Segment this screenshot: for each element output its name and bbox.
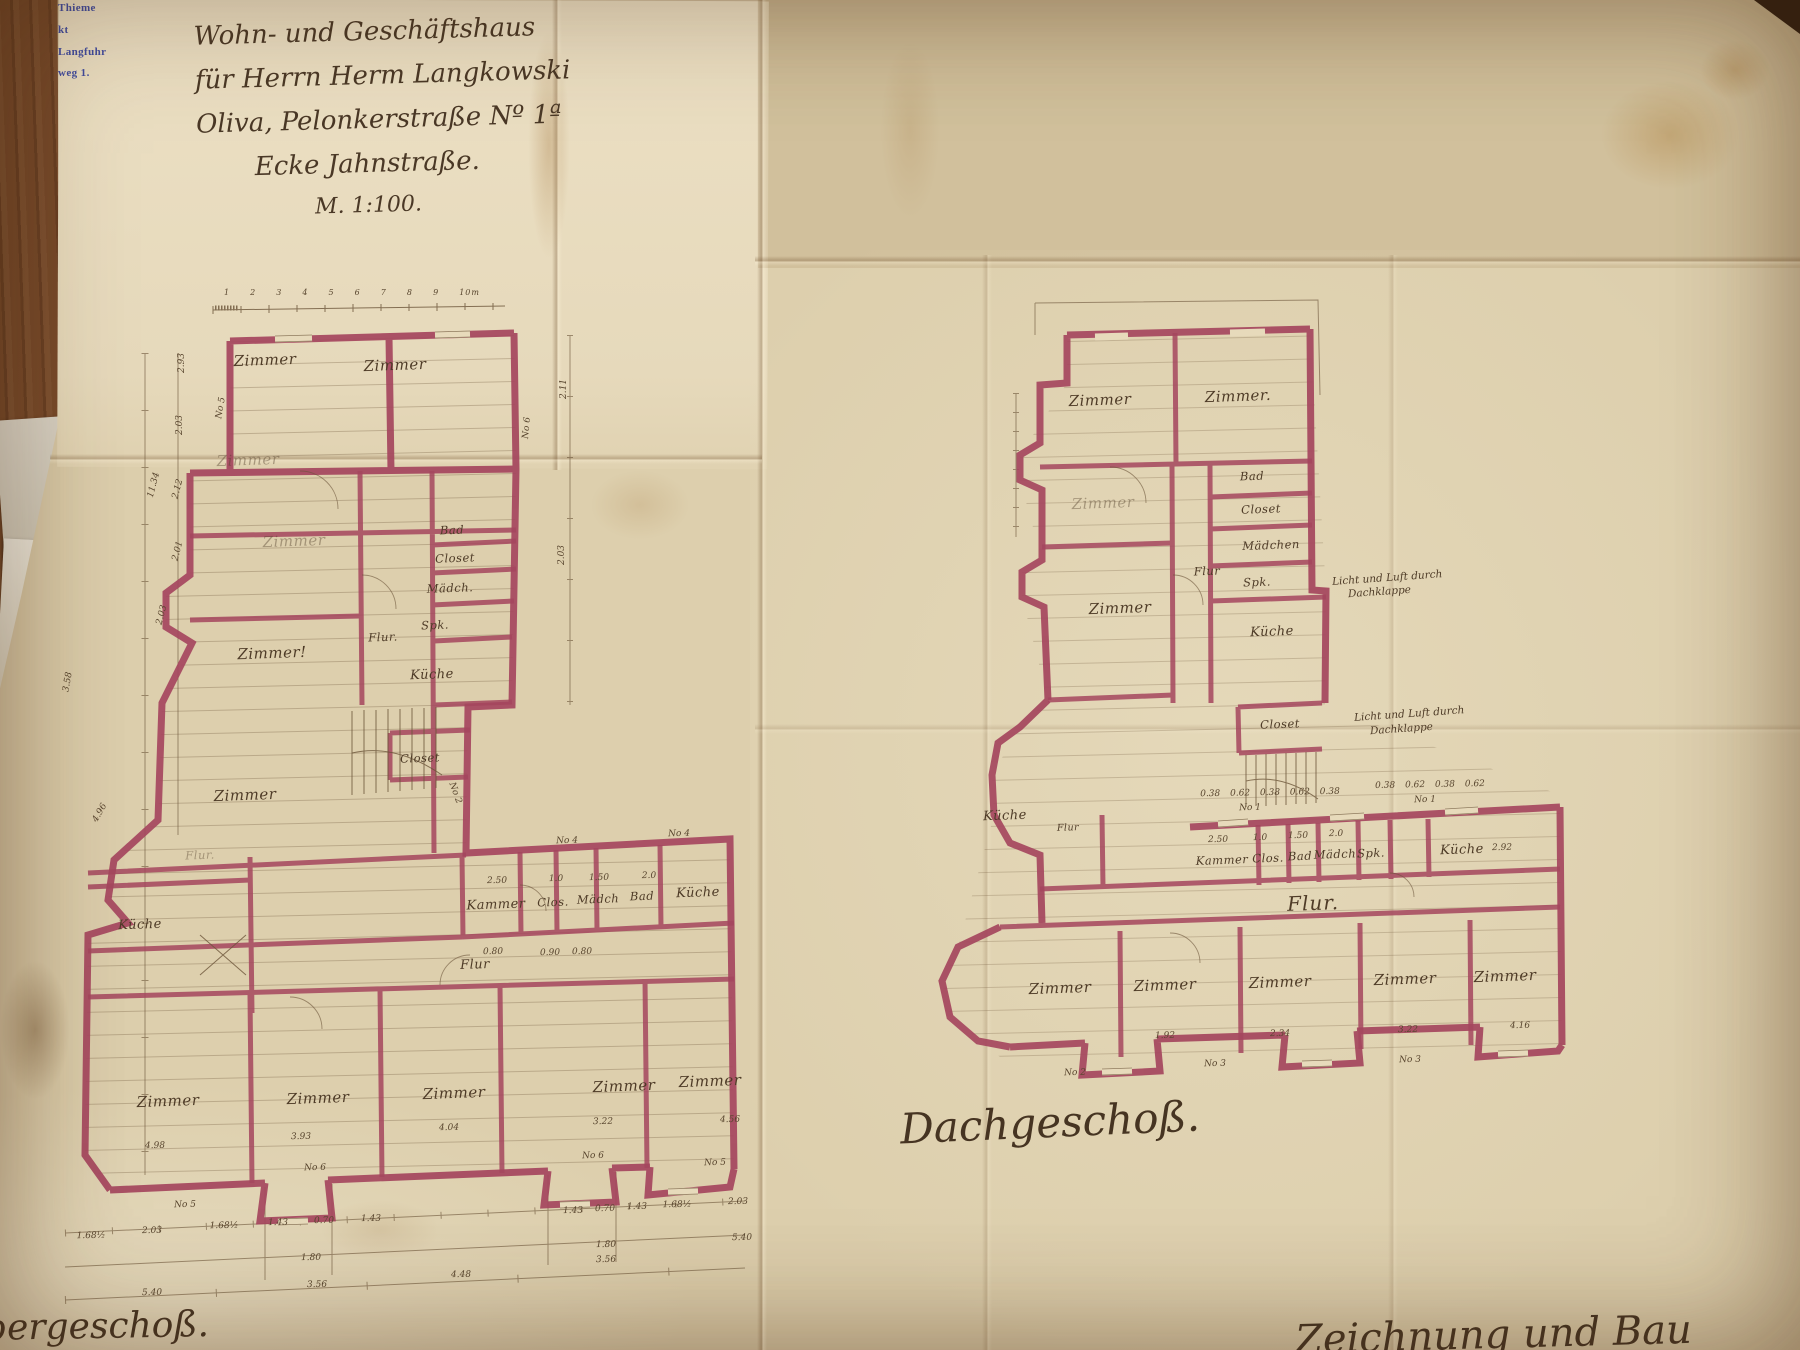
room-label: Zimmer [678,1071,741,1091]
room-label: Flur [1193,564,1220,579]
room-label: Zimmer [1473,966,1536,986]
window-number: No 1 [1414,795,1436,805]
room-label: Flur [460,957,490,973]
room-label: Mädch. [427,580,474,596]
dimension: 1.50 [589,873,609,883]
room-label: Zimmer [1373,969,1436,989]
stamp-line: Thieme [58,2,106,15]
dimension: 0.70 [595,1204,615,1214]
dimension: 2.0 [642,871,657,881]
room-label: Spk. [1243,575,1271,590]
dimension: 3.22 [1398,1025,1418,1035]
room-label: Zimmer [592,1076,655,1096]
window-number: No 5 [704,1158,726,1168]
room-label: Closet [1241,501,1281,516]
room-label: Zimmer [363,355,426,375]
dimension: 4.16 [1510,1021,1530,1031]
room-label: Küche [118,917,162,934]
dimension: 2.92 [1492,843,1512,853]
dimension: 2.0 [1329,829,1344,839]
room-label: Flur. [368,629,398,644]
room-label: Zimmer [1088,598,1151,618]
dimension: 1.43 [361,1214,381,1224]
dimension: 4.48 [451,1270,471,1280]
dimension: 2.34 [1270,1029,1290,1039]
room-label: Küche [1440,842,1484,859]
room-label: Bad [630,889,655,904]
room-label: Flur. [1287,890,1340,916]
dimension: 1.50 [1288,831,1308,841]
photographed-floor-plan: Thieme kt Langfuhr weg 1. Wohn- und Gesc… [0,0,1800,1350]
title-block: Wohn- und Geschäftshaus für Herrn Herm L… [193,5,539,230]
room-label: Flur. [185,847,215,862]
architect-stamp: Thieme kt Langfuhr weg 1. [58,2,106,80]
dimension: 1.0 [549,874,564,884]
dimension: 2.50 [1208,835,1228,845]
room-label: Closet [400,750,440,765]
dimension-row: 0.38 0.62 0.38 0.62 [1375,779,1485,791]
room-label: Küche [676,885,720,902]
room-label: Zimmer [286,1088,349,1108]
dimension: 0.80 [572,947,592,957]
dimension: 3.22 [593,1117,613,1127]
room-label: Zimmer [422,1083,485,1103]
window-number: No 5 [174,1200,196,1210]
stamp-line: kt [58,24,106,37]
dimension: 4.04 [439,1123,459,1133]
room-label: Bad [440,523,465,538]
dimension: 0.80 [483,947,503,957]
stamp-line: weg 1. [58,67,106,80]
stain [880,40,940,220]
room-label: Zimmer [136,1091,199,1111]
dimension: 0.90 [540,948,560,958]
room-label: Zimmer [213,785,276,805]
window-number: No 2 [1064,1068,1086,1078]
room-label: Küche [410,667,454,684]
dimension: 4.56 [720,1115,740,1125]
dimension: 3.93 [291,1132,311,1142]
dimension: 2.93 [177,353,187,373]
dimension: 4.98 [145,1141,165,1151]
dimension: 3.56 [307,1280,327,1290]
window-number: No 4 [668,829,690,839]
room-label: Closet [435,550,475,565]
dimension: 1.92 [1155,1031,1175,1041]
window-number: No 1 [1239,803,1261,813]
dimension: 1.80 [596,1240,616,1250]
dimension: 2.03 [728,1197,748,1207]
dimension: 1.0 [1253,833,1268,843]
room-label: Bad [1288,849,1313,864]
room-label: Küche [1250,624,1294,641]
room-label: Küche [983,808,1027,825]
stain [1700,40,1770,100]
dimension: 1.68½ [663,1200,692,1211]
dimension: 5.40 [732,1233,752,1243]
stamp-line: Langfuhr [58,46,106,59]
dimension: 2.11 [559,379,569,399]
room-label: Zimmer [1068,390,1131,410]
room-label: Mädch [577,891,620,906]
dimension: 2.50 [487,876,507,886]
room-label: Mädch. [1314,846,1361,862]
dimension: 2.03 [557,545,567,565]
room-label: Zimmer [1028,978,1091,998]
dimension: 1.80 [301,1253,321,1263]
caption-obergeschoss: bergeschoß. [0,1304,209,1349]
dimension: 0.70 [314,1216,334,1226]
room-label: Zimmer [1248,972,1311,992]
room-label: Kammer [466,896,526,913]
room-label: Zimmer. [1205,386,1272,406]
room-label: Closet [1260,716,1300,731]
floor-plan-obergeschoss: Zimmer Zimmer Zimmer Bad Closet Mädch. S… [50,275,750,1305]
window-number: No 4 [556,836,578,846]
dimension: 1.68½ [210,1221,239,1232]
room-label: Spk. [1357,846,1385,861]
room-label: Zimmer [233,350,296,370]
dimension: 2.03 [142,1226,162,1236]
room-label: Zimmer [262,531,325,551]
dimension: 1.43 [563,1206,583,1216]
room-label: Mädchen [1242,537,1300,553]
dimension: 1.43 [627,1202,647,1212]
room-label: Bad [1240,469,1265,484]
floor-plan-dachgeschoss: Zimmer Zimmer. Zimmer Bad Closet Mädchen… [870,275,1570,1085]
room-label: Spk. [421,618,449,633]
window-number: No 3 [1399,1055,1421,1065]
dimension: 1.68½ [77,1231,106,1242]
fold-crease [757,0,767,1350]
window-number: No 6 [304,1163,326,1173]
window-number: No 6 [521,417,533,440]
room-label: Clos. [1252,850,1284,865]
room-label: Zimmer! [237,643,307,663]
fold-crease [755,256,1800,266]
dimension: 5.40 [142,1288,162,1298]
room-label: Zimmer [1071,493,1134,513]
room-label: Zimmer [1133,975,1196,995]
room-label: Flur [1057,822,1080,834]
room-label: Kammer [1195,852,1248,868]
dimension: 1.43 [268,1218,288,1228]
window-number: No 6 [582,1151,604,1161]
dimension: 3.56 [596,1255,616,1265]
dimension: 2.03 [175,415,185,435]
room-label: Clos. [537,894,569,909]
window-number: No 3 [1204,1059,1226,1069]
room-label: Zimmer [216,450,279,470]
